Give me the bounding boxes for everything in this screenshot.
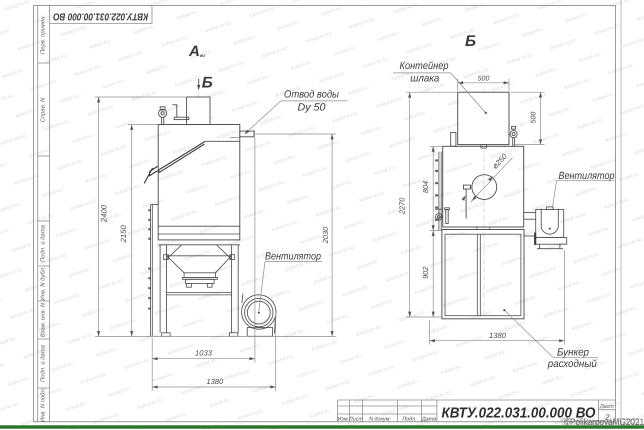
svg-text:1033: 1033 bbox=[195, 349, 213, 358]
svg-text:Бункер: Бункер bbox=[557, 347, 589, 359]
svg-text:КВТУ.022.031.00.000 ВО: КВТУ.022.031.00.000 ВО bbox=[53, 10, 148, 21]
svg-text:2270: 2270 bbox=[397, 197, 406, 215]
svg-text:2030: 2030 bbox=[321, 226, 330, 244]
svg-text:1380: 1380 bbox=[489, 331, 507, 340]
svg-text:Отвод воды: Отвод воды bbox=[284, 89, 339, 101]
svg-text:Подп.: Подп. bbox=[402, 417, 416, 423]
svg-text:Dy 50: Dy 50 bbox=[298, 101, 326, 113]
svg-text:расходный: расходный bbox=[547, 358, 597, 370]
svg-text:Подп. и дата: Подп. и дата bbox=[40, 344, 47, 382]
svg-text:Дата: Дата bbox=[421, 417, 436, 423]
svg-text:Инв. N подл.: Инв. N подл. bbox=[40, 388, 47, 422]
svg-text:Перв. примен.: Перв. примен. bbox=[40, 15, 47, 54]
svg-text:500: 500 bbox=[478, 75, 490, 82]
svg-text:Вентилятор: Вентилятор bbox=[265, 251, 321, 263]
svg-text:Лист: Лист bbox=[599, 404, 614, 410]
svg-text:Справ. N: Справ. N bbox=[40, 97, 47, 122]
svg-text:804: 804 bbox=[421, 181, 430, 193]
svg-text:©PolikarpovaMG2021: ©PolikarpovaMG2021 bbox=[564, 417, 644, 427]
svg-text:Б: Б bbox=[202, 75, 213, 92]
svg-text:N докум.: N докум. bbox=[369, 417, 391, 423]
svg-text:1380: 1380 bbox=[206, 377, 224, 386]
svg-text:Взам. инв. N: Взам. инв. N bbox=[40, 302, 47, 337]
svg-text:2150: 2150 bbox=[119, 225, 128, 244]
svg-text:Контейнер: Контейнер bbox=[400, 60, 449, 72]
svg-text:500: 500 bbox=[531, 112, 538, 124]
svg-text:Подп. и дата: Подп. и дата bbox=[40, 224, 47, 262]
svg-text:2400: 2400 bbox=[100, 204, 109, 223]
svg-text:Изм.: Изм. bbox=[338, 417, 350, 423]
svg-text:Вентилятор: Вентилятор bbox=[559, 170, 615, 182]
svg-text:Лист: Лист bbox=[348, 417, 363, 423]
svg-text:Инв. N дубл.: Инв. N дубл. bbox=[40, 266, 47, 300]
svg-text:902: 902 bbox=[421, 267, 430, 279]
svg-text:Б: Б bbox=[465, 33, 476, 50]
svg-text:шлака: шлака bbox=[410, 73, 439, 85]
